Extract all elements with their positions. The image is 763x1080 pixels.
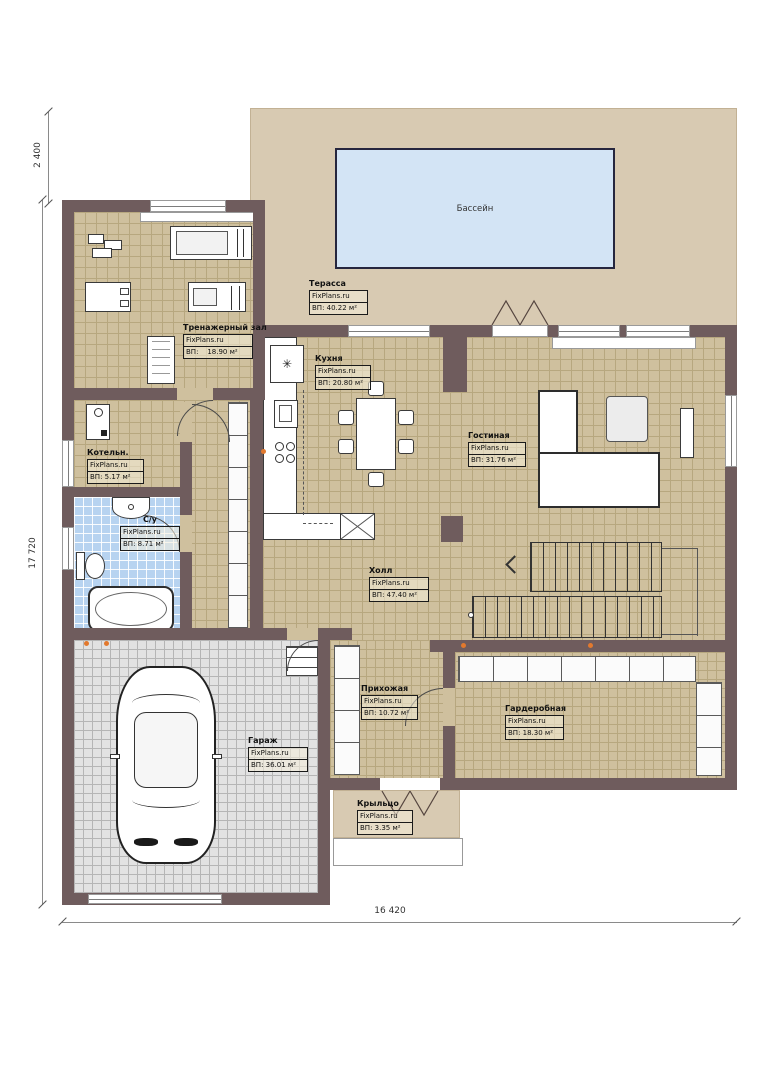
bench-pad	[120, 300, 129, 307]
wall-segment	[62, 388, 177, 400]
room-label-terrace: Терасса FixPlans.ru ВП: 40.22 м²	[309, 279, 368, 315]
room-area: ВП: 40.22 м²	[310, 303, 367, 314]
door-opening	[443, 688, 455, 726]
wall-column	[441, 516, 463, 542]
room-label-bathroom: С/у FixPlans.ru ВП: 8.71 м²	[120, 515, 180, 551]
bathtub	[88, 586, 174, 632]
garage-door	[88, 894, 222, 904]
room-area: ВП: 5.17 м²	[88, 472, 143, 483]
sink-drain	[128, 504, 134, 510]
brand-label: FixPlans.ru	[362, 696, 417, 708]
wall-segment	[318, 628, 330, 905]
terrace-door-opening	[492, 325, 548, 337]
pool: Бассейн	[335, 148, 615, 269]
wall-segment	[180, 442, 192, 487]
outlet-marker	[261, 449, 266, 454]
upper-cabinet-line	[303, 390, 304, 515]
wall-segment	[443, 640, 455, 688]
car-rear-window	[132, 792, 200, 808]
porch-step	[333, 838, 463, 866]
stairs-start-post	[468, 612, 474, 618]
outlet-marker	[461, 643, 466, 648]
room-area: ВП: 8.71 м²	[121, 539, 179, 550]
wardrobe-closet	[458, 656, 696, 682]
outlet-marker	[104, 641, 109, 646]
wall-segment	[430, 640, 737, 652]
dimension-label-terrace-height: 2 400	[33, 133, 43, 177]
treadmill-belt	[176, 231, 228, 255]
stairs-flight	[472, 596, 662, 638]
car-top-view	[116, 666, 216, 864]
chair	[338, 410, 354, 425]
exercise-machine	[147, 336, 175, 384]
wall-segment	[443, 726, 455, 790]
brand-label: FixPlans.ru	[249, 748, 307, 760]
room-label-entry: Прихожая FixPlans.ru ВП: 10.72 м²	[361, 684, 418, 720]
treadmill-roller	[237, 229, 238, 257]
room-area: ВП: 20.80 м²	[316, 378, 370, 389]
car-mirror	[212, 754, 222, 759]
kitchen-appliance	[340, 513, 375, 540]
car-roof	[134, 712, 198, 788]
window	[626, 325, 690, 337]
outlet-marker	[84, 641, 89, 646]
dimension-line	[42, 200, 43, 905]
double-door-icon	[490, 299, 550, 326]
dimension-label-house-height: 17 720	[28, 528, 38, 578]
burner-icon	[275, 442, 284, 451]
burner-icon	[275, 454, 284, 463]
machine-rack	[152, 341, 170, 379]
entry-closet	[334, 645, 360, 775]
tv-unit	[680, 408, 694, 458]
room-name: С/у	[120, 515, 180, 525]
room-area: ВП: 47.40 м²	[370, 590, 428, 601]
stairs-railing	[662, 548, 697, 549]
brand-label: FixPlans.ru	[88, 460, 143, 472]
window-sill	[140, 212, 256, 222]
bathtub-basin	[95, 592, 167, 626]
room-label-hall: Холл FixPlans.ru ВП: 47.40 м²	[369, 566, 429, 602]
burner-icon	[286, 454, 295, 463]
wall-segment	[443, 778, 737, 790]
entrance-door-opening	[380, 778, 440, 790]
brand-label: FixPlans.ru	[184, 335, 252, 347]
stove	[274, 441, 298, 467]
window	[725, 395, 737, 467]
door-opening	[180, 515, 192, 552]
treadmill	[170, 226, 252, 260]
brand-label: FixPlans.ru	[469, 443, 525, 455]
machine-bar	[239, 286, 240, 310]
room-name: Тренажерный зал	[183, 323, 267, 333]
toilet-tank	[76, 552, 85, 580]
room-label-gym: Тренажерный зал FixPlans.ru ВП: 18.90 м²	[183, 323, 267, 359]
room-label-garage: Гараж FixPlans.ru ВП: 36.01 м²	[248, 736, 308, 772]
outlet-marker	[588, 643, 593, 648]
boiler-unit	[86, 404, 110, 440]
bench-pad	[120, 288, 129, 295]
wardrobe-closet	[696, 682, 722, 776]
brand-label: FixPlans.ru	[506, 716, 563, 728]
car-mirror	[110, 754, 120, 759]
cross-icon	[341, 514, 374, 539]
chair	[398, 439, 414, 454]
kitchen-sink	[274, 400, 298, 428]
dimension-label-house-width: 16 420	[345, 906, 435, 916]
chair	[398, 410, 414, 425]
room-area: ВП: 10.72 м²	[362, 708, 417, 719]
wall-column	[443, 337, 467, 392]
room-name: Прихожая	[361, 684, 418, 694]
corridor-cabinet	[228, 402, 248, 628]
wall-segment	[180, 552, 192, 640]
stairs-railing	[662, 634, 697, 635]
brand-label: FixPlans.ru	[121, 527, 179, 539]
wall-segment	[62, 487, 192, 497]
dimension-line	[62, 922, 737, 923]
sink-basin	[279, 405, 292, 422]
brand-label: FixPlans.ru	[370, 578, 428, 590]
machine-bar	[231, 286, 232, 310]
sofa	[538, 452, 660, 508]
weight-bench	[85, 282, 131, 312]
window	[348, 325, 430, 337]
brand-label: FixPlans.ru	[358, 811, 412, 823]
snowflake-icon: ✳	[282, 357, 292, 371]
room-name: Крыльцо	[357, 799, 413, 809]
room-label-wardrobe: Гардеробная FixPlans.ru ВП: 18.30 м²	[505, 704, 566, 740]
room-name: Терасса	[309, 279, 368, 289]
room-name: Кухня	[315, 354, 371, 364]
treadmill-roller	[243, 229, 244, 257]
door-opening	[177, 388, 213, 400]
window	[150, 200, 226, 212]
machine-pad	[193, 288, 217, 306]
fridge: ✳	[270, 345, 304, 383]
dimension-line	[48, 112, 49, 204]
room-label-boiler: Котельн. FixPlans.ru ВП: 5.17 м²	[87, 448, 144, 484]
room-area: ВП: 31.76 м²	[469, 455, 525, 466]
chair	[368, 472, 384, 487]
dumbbell	[92, 248, 112, 258]
wall-segment	[180, 487, 192, 515]
exercise-machine	[188, 282, 246, 312]
room-name: Гостиная	[468, 431, 526, 441]
coffee-table	[606, 396, 648, 442]
car-headlight	[134, 838, 158, 846]
room-name: Гардеробная	[505, 704, 566, 714]
car-headlight	[174, 838, 198, 846]
room-name: Гараж	[248, 736, 308, 746]
wall-segment	[253, 200, 265, 400]
room-area: ВП: 18.90 м²	[184, 347, 252, 358]
room-label-porch: Крыльцо FixPlans.ru ВП: 3.35 м²	[357, 799, 413, 835]
room-name: Холл	[369, 566, 429, 576]
room-area: ВП: 3.35 м²	[358, 823, 412, 834]
room-label-kitchen: Кухня FixPlans.ru ВП: 20.80 м²	[315, 354, 371, 390]
room-area: ВП: 36.01 м²	[249, 760, 307, 771]
dumbbell	[88, 234, 104, 244]
window	[558, 325, 620, 337]
brand-label: FixPlans.ru	[316, 366, 370, 378]
dining-table	[356, 398, 396, 470]
stairs-railing	[697, 548, 698, 636]
car-windshield	[132, 694, 200, 712]
upper-cabinet-line	[303, 523, 333, 524]
boiler-gauge	[94, 408, 103, 417]
window	[62, 527, 74, 570]
pool-label: Бассейн	[457, 204, 494, 214]
burner-icon	[286, 442, 295, 451]
chair	[338, 439, 354, 454]
wall-segment	[250, 398, 263, 640]
room-area: ВП: 18.30 м²	[506, 728, 563, 739]
floor-plan: Бассейн	[0, 0, 763, 1080]
window	[62, 440, 74, 487]
toilet-bowl	[85, 553, 105, 579]
boiler-panel	[101, 430, 107, 436]
room-name: Котельн.	[87, 448, 144, 458]
brand-label: FixPlans.ru	[310, 291, 367, 303]
stairs-flight	[530, 542, 662, 592]
door-opening	[287, 628, 318, 640]
window-sill	[552, 337, 696, 349]
room-label-living: Гостиная FixPlans.ru ВП: 31.76 м²	[468, 431, 526, 467]
